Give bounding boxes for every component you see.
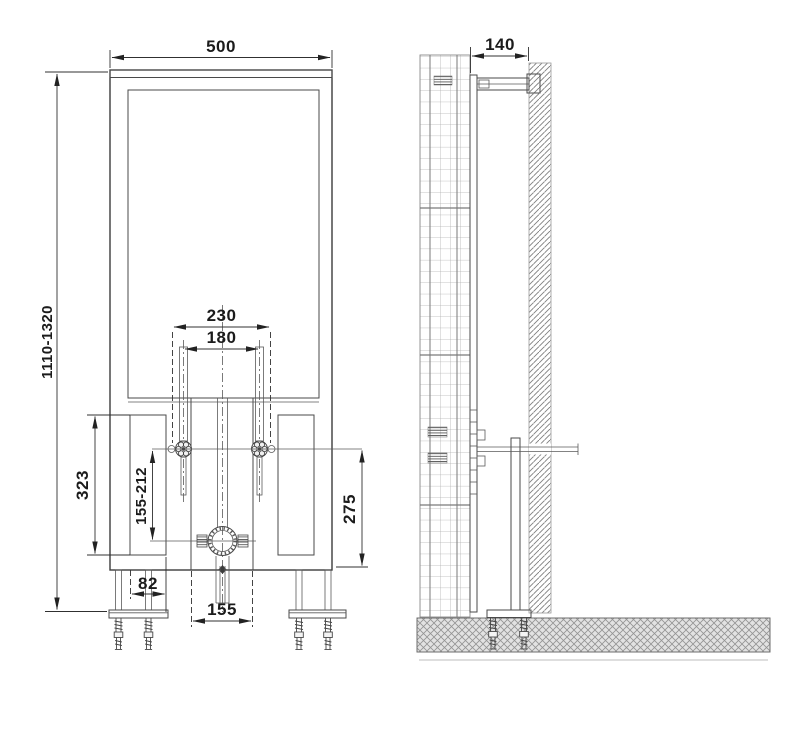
dim-label-outlet-adjust: 155-212 [133, 467, 150, 525]
dim-label-frame-height: 1110-1320 [39, 305, 56, 379]
frame-profile-side [470, 75, 485, 612]
wall-sleeve-marker-lower [428, 453, 447, 463]
dim-label-frame-width: 500 [206, 37, 236, 56]
drawing-canvas: 500 1110-1320 230 180 323 [0, 0, 800, 731]
right-foot [289, 570, 346, 650]
dimension-frame-height: 1110-1320 [39, 72, 108, 612]
mounting-rod-side [477, 444, 578, 456]
dimension-panel-height: 323 [73, 415, 130, 555]
dimension-panel-width: 82 [131, 557, 167, 612]
structural-wall-section [529, 63, 551, 613]
dim-label-panel-height: 323 [73, 470, 92, 500]
side-view: 140 [417, 35, 770, 660]
rear-leg-side [511, 438, 520, 610]
dimension-outlet-opening: 155 [192, 571, 253, 627]
right-side-panel [278, 415, 314, 555]
floor-section [417, 618, 770, 660]
dim-label-rod-spacing: 180 [207, 328, 237, 347]
dim-label-anchor-spacing: 230 [207, 306, 237, 325]
frame-top-crossbar [110, 70, 332, 78]
mounting-rod-left [168, 340, 192, 505]
dim-label-frame-depth: 140 [485, 35, 515, 54]
dimension-frame-depth: 140 [471, 35, 529, 73]
mounting-rod-right [252, 340, 276, 505]
front-view [109, 70, 362, 650]
dimension-frame-width: 500 [110, 37, 332, 68]
wall-sleeve-marker-top [434, 76, 452, 85]
wall-sleeve-marker-upper [428, 427, 447, 437]
tiled-wall-section [420, 55, 470, 617]
dimension-outlet-adjust: 155-212 [133, 451, 153, 540]
cistern-window [128, 90, 319, 398]
dimension-rod-to-base: 275 [336, 451, 368, 568]
dim-label-panel-width: 82 [138, 574, 158, 593]
dim-label-outlet-opening: 155 [207, 600, 237, 619]
dim-label-rod-to-base: 275 [340, 494, 359, 524]
dimension-rod-spacing: 180 [185, 328, 258, 349]
technical-drawing: 500 1110-1320 230 180 323 [0, 0, 800, 731]
